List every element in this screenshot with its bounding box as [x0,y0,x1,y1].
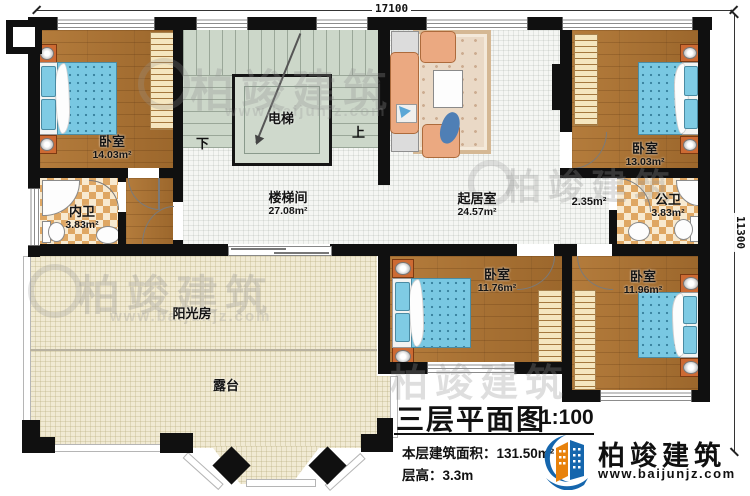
wall-segment [28,244,228,256]
toilet-icon [48,222,65,242]
room-area: 27.08m² [268,206,307,218]
terrace-pillar [160,433,193,453]
wall-segment [159,168,183,178]
room-area: 3.83m² [651,208,684,220]
room-label-sunroom: 阳光房 [172,307,211,322]
dimension-right-value: 11300 [734,213,747,252]
sliding-door-panel [231,248,286,250]
terrace-pillar [22,437,55,453]
room-name: 卧室 [92,135,131,150]
room-area: 14.03m² [92,150,131,162]
wardrobe [574,290,596,390]
nightstand [680,136,700,154]
stair-down-label: 下 [196,133,209,152]
room-label-bedroom-bottomright: 卧室 11.96m² [624,270,663,296]
room-label-terrace: 露台 [213,379,239,394]
room-label-bedroom-topright: 卧室 13.03m² [625,142,664,168]
window [426,17,528,30]
wardrobe [574,34,598,126]
room-label-corridor: 2.35m² [572,196,607,208]
room-area: 11.76m² [478,283,517,295]
room-label-bedroom-topleft: 卧室 14.03m² [92,135,131,161]
room-area: 2.35m² [572,196,607,208]
terrace-glass-wall [246,479,316,487]
wall-segment [690,390,710,402]
watermark-url: www.baijunjz.com [225,103,386,120]
floor-plan-canvas: 柏竣建筑 www.baijunjz.com 柏竣建筑 柏竣建筑 www.baij… [0,0,750,496]
bed-pillow [395,282,410,311]
room-name: 卧室 [625,142,664,157]
wall-segment [330,244,517,256]
toilet-icon [674,219,693,240]
sink-icon [628,222,650,241]
bed-sheet-fold [55,63,70,134]
wall-segment [118,212,126,256]
room-label-bedroom-bottommiddle: 卧室 11.76m² [478,268,517,294]
bed-pillow [395,313,410,342]
sunroom-terrace-divider [30,349,377,351]
bed-pillow [683,326,697,354]
window [562,17,693,30]
room-area: 11.96m² [624,285,663,297]
room-name: 露台 [213,379,239,394]
room-name: 公卫 [651,193,684,208]
room-area: 13.03m² [625,157,664,169]
bed-pillow [41,99,56,130]
room-label-inner-bath: 内卫 3.83m² [65,205,98,231]
room-name: 楼梯间 [268,191,307,206]
sink-icon [96,226,120,244]
bed-pillow [684,99,698,129]
tv-icon [552,64,560,110]
floor-height-text: 层高：3.3m [402,464,473,484]
stair-up-label: 上 [352,122,365,141]
bed-pillow [41,66,56,97]
wall-segment [560,30,572,132]
nightstand [392,259,414,278]
door-leaf [158,178,160,209]
room-name: 卧室 [624,270,663,285]
plan-scale: 1:100 [540,406,594,430]
floor-area-text: 本层建筑面积：131.50m² [402,442,554,462]
room-label-elevator: 电梯 [268,112,294,127]
bed-sheet-fold [409,279,424,347]
window [57,17,155,30]
wall-segment [378,244,390,374]
window [196,17,248,30]
brand-url: www.baijunjz.com [598,466,736,481]
bed-pillow [683,296,697,324]
room-name: 内卫 [65,205,98,220]
wall-segment [118,178,126,182]
wall-segment [40,168,128,178]
room-label-living: 起居室 24.57m² [457,192,496,218]
terrace-pillar [361,434,393,452]
room-name: 卧室 [478,268,517,283]
coffee-table [433,70,463,108]
window [600,390,692,402]
bed-pillow [684,66,698,96]
brand-logo-icon [538,432,594,490]
sliding-door [228,246,332,256]
sliding-door-panel [274,252,329,254]
nightstand [680,44,700,62]
room-name: 电梯 [268,112,294,127]
room-area: 24.57m² [457,207,496,219]
watermark-logo-icon [138,58,190,110]
chimney-block [6,20,42,54]
wall-segment [612,244,710,256]
exterior-wall-right [698,17,710,402]
room-area: 3.83m² [65,220,98,232]
wall-segment [173,240,183,256]
dimension-top-value: 17100 [372,2,411,15]
room-label-public-bath: 公卫 3.83m² [651,193,684,219]
room-name: 起居室 [457,192,496,207]
window [28,188,40,246]
window [316,17,368,30]
room-name: 阳光房 [172,307,211,322]
plan-title: 三层平面图 [396,398,546,438]
nightstand [37,135,57,154]
wall-segment [609,210,617,244]
room-label-stair-hall: 楼梯间 27.08m² [268,191,307,217]
watermark-logo-icon [28,264,82,318]
terrace-glass-wall [40,444,164,452]
